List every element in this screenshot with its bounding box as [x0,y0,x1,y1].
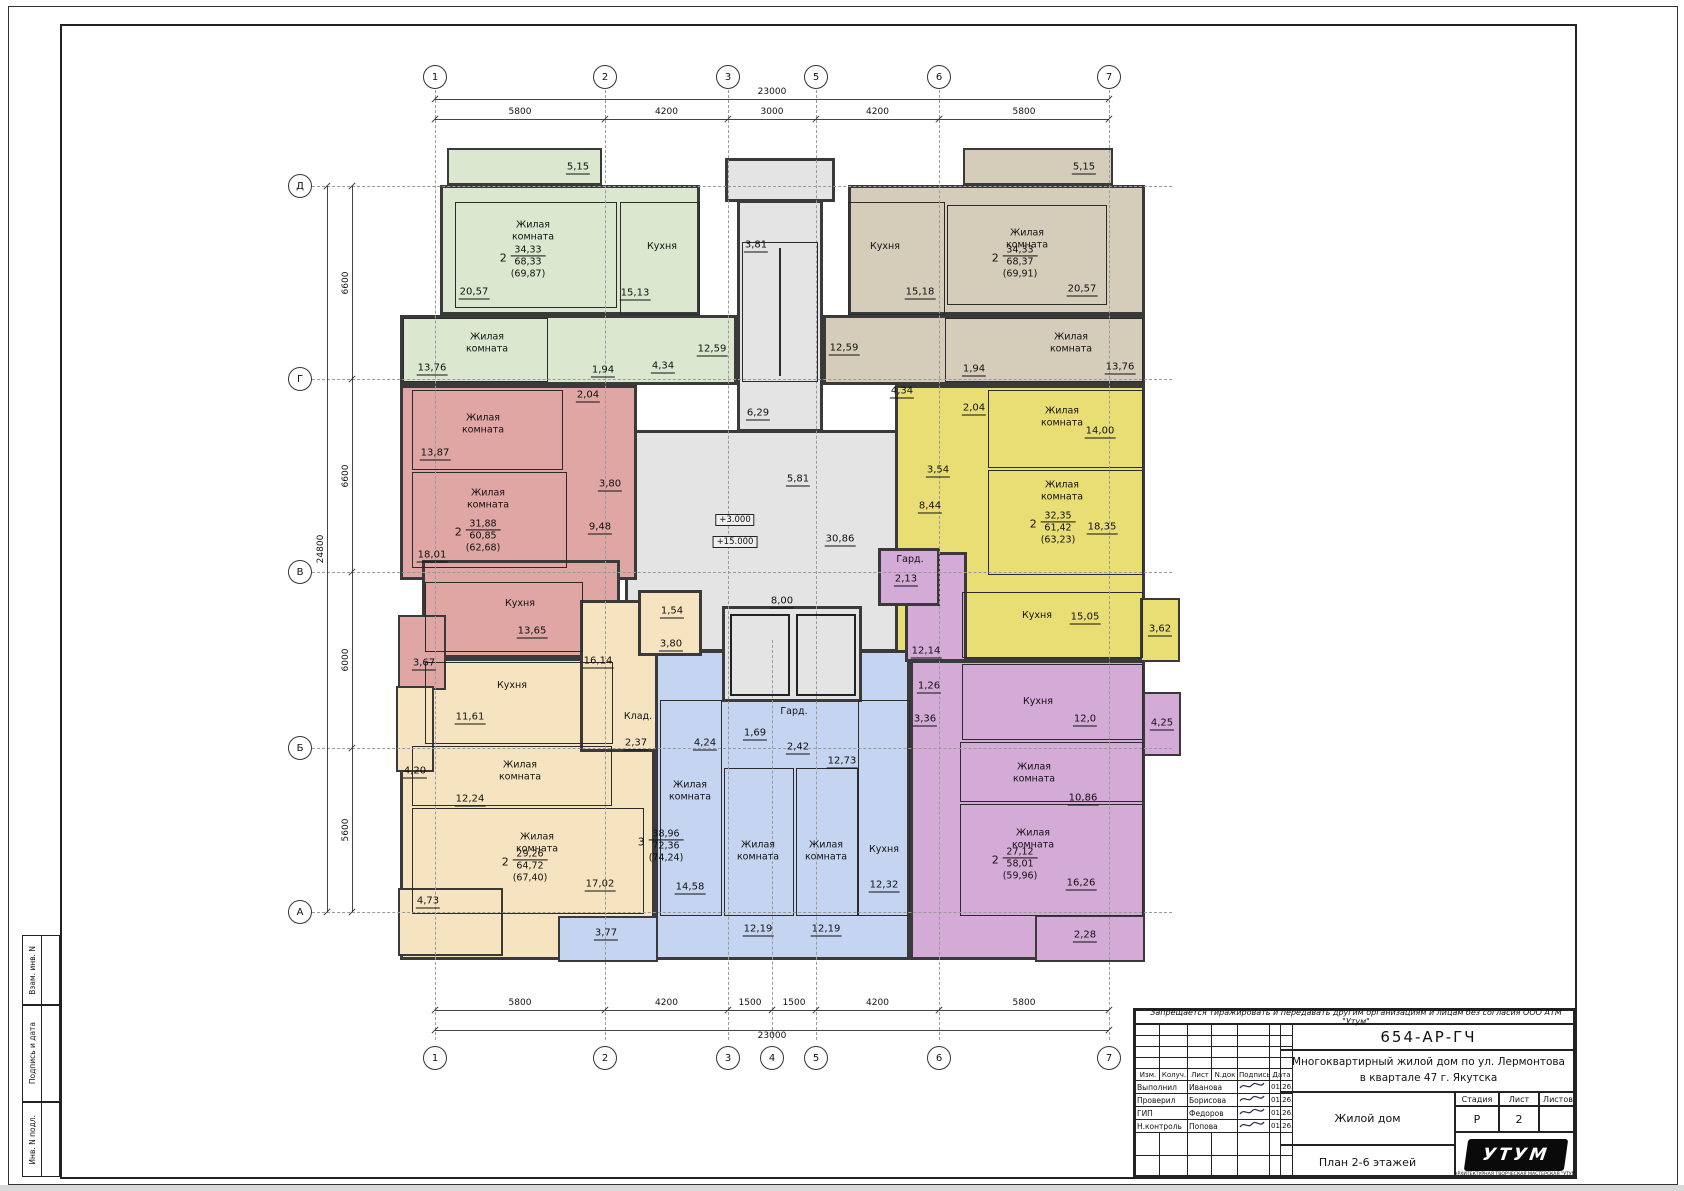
rooms-count: 2 [502,855,509,868]
living-area: 34,33 [1003,244,1038,256]
common-area-value: 30,86 [825,534,856,547]
room-area: 4,34 [890,386,914,399]
stage-table: СтадияРЛист2Листов [1455,1092,1577,1132]
signature-icon [1239,1094,1265,1104]
room-area: 5,15 [566,162,590,175]
room-area: 11,61 [455,712,486,725]
axis-line [605,90,606,1040]
room-area: 13,76 [1105,362,1136,375]
role-cell: Н.контроль [1136,1120,1188,1133]
elevation-mark: +3.000 [715,514,754,526]
dimension-value: 24800 [316,535,326,564]
axis-bubble: 2 [593,1046,617,1070]
stamp-side-label: Подпись и дата [23,1006,42,1101]
title-block: Запрещается тиражировать и передавать др… [1133,1008,1575,1177]
room-area: 4,34 [651,361,675,374]
project-line-1: Многоквартирный жилой дом по ул. Лермонт… [1292,1055,1565,1071]
living-area: 38,96 [649,828,684,840]
axis-line [939,90,940,1040]
room-area: 12,32 [869,880,900,893]
stamp-side-label: Взам. инв. N [23,936,42,1004]
logo: УТУМ АРХИТЕКТУРНАЯ ТВОРЧЕСКАЯ МАСТЕРСКАЯ… [1455,1132,1577,1179]
room-name: Жилая комната [499,760,541,785]
total-area-with-balcony: (67,40) [513,872,548,883]
object-name: Жилой дом [1280,1092,1455,1145]
name-cell: Попова [1188,1120,1238,1133]
grid-header: Изм. [1136,1069,1160,1081]
axis-bubble: А [288,900,312,924]
room-area: 12,24 [455,794,486,807]
dimension-value: 1500 [783,998,806,1008]
common-area-value: 8,00 [770,596,794,609]
room-name: Гард. [896,554,923,566]
axis-bubble: 5 [804,65,828,89]
axis-line [312,912,1172,913]
room-area: 2,37 [624,738,648,751]
signature-icon [1239,1107,1265,1117]
dimension-value: 4200 [655,998,678,1008]
stamp-side-label: Инв. N подл. [23,1103,42,1176]
total-area-with-balcony: (74,24) [649,852,684,863]
axis-line [312,572,1172,573]
room-area: 16,14 [583,656,614,669]
living-area: 32,35 [1041,510,1076,522]
stage-header-cell: Стадия [1455,1092,1499,1106]
room-area: 9,48 [588,522,612,535]
living-area: 31,88 [466,518,501,530]
room-name: Жилая комната [1041,406,1083,431]
room-name: Жилая комната [669,780,711,805]
axis-line [816,90,817,1040]
stage-value-cell: Р [1455,1106,1499,1132]
common-area-value: 3,81 [744,240,768,253]
room-area: 4,20 [403,766,427,779]
axis-line [728,90,729,1040]
axis-line [312,186,1172,187]
stage-value-cell [1539,1106,1577,1132]
room-area: 12,14 [911,646,942,659]
room-area: 20,57 [1067,284,1098,297]
dimension-value: 6600 [341,464,351,487]
living-area: 34,33 [511,244,546,256]
apartment-area-formula: 231,8860,85(62,68) [466,518,501,553]
stamp-side-cell: Взам. инв. N [22,935,60,1005]
apartment-area-formula: 227,1258,01(59,96) [1003,846,1038,881]
room-area: 3,80 [659,639,683,652]
room-area: 3,80 [598,479,622,492]
apartment-area-formula: 338,9672,36(74,24) [649,828,684,863]
room-area: 3,62 [1148,624,1172,637]
dimension-value: 5600 [341,819,351,842]
room-area: 15,13 [620,288,651,301]
axis-bubble: Г [288,367,312,391]
signature-row: ПроверилБорисова01.26. [1136,1094,1293,1107]
stair-divider [779,248,781,376]
room-area: 2,13 [894,574,918,587]
room-name: Клад. [624,711,652,723]
common-area-value: 5,81 [786,474,810,487]
room-area: 10,86 [1068,793,1099,806]
room-area: 13,65 [517,626,548,639]
room-area: 3,67 [412,658,436,671]
living-area: 27,12 [1003,846,1038,858]
room [425,582,583,652]
signature-icon [1239,1120,1265,1130]
signature [1238,1094,1270,1107]
total-area-with-balcony: (63,23) [1041,534,1076,545]
total-area: 61,42 [1041,523,1076,534]
axis-bubble: В [288,560,312,584]
room-area: 1,26 [917,681,941,694]
role-cell: ГИП [1136,1107,1188,1120]
axis-bubble: 1 [423,65,447,89]
room-name: Жилая комната [1013,762,1055,787]
revision-table: Изм.Колуч.ЛистN.докПодписьДатаВыполнилИв… [1135,1024,1280,1179]
room-area: 3,36 [913,714,937,727]
room-name: Кухня [505,598,535,610]
total-area: 64,72 [513,861,548,872]
room [960,804,1143,916]
axis-line [312,748,1172,749]
room-name: Кухня [1023,696,1053,708]
room-name: Жилая комната [1050,332,1092,357]
elevator-shaft [796,614,856,696]
room-area: 12,0 [1073,714,1097,727]
room-area: 1,54 [660,606,684,619]
axis-bubble: 5 [804,1046,828,1070]
apartment-area-formula: 232,3561,42(63,23) [1041,510,1076,545]
signature [1238,1120,1270,1133]
grid-header: Лист [1188,1069,1212,1081]
room-name: Кухня [647,241,677,253]
stage-header-cell: Лист [1499,1092,1539,1106]
room [962,592,1143,658]
signature-icon [1239,1081,1265,1091]
axis-bubble: 7 [1097,1046,1121,1070]
room-name: Кухня [870,241,900,253]
axis-bubble: 7 [1097,65,1121,89]
dimension-line [435,119,1109,120]
room-area: 4,73 [416,896,440,909]
room-area: 1,94 [591,365,615,378]
dimension-value: 5800 [1013,107,1036,117]
room-area: 12,59 [697,344,728,357]
dimension-value: 5800 [1013,998,1036,1008]
signature [1238,1107,1270,1120]
axis-bubble: 6 [927,1046,951,1070]
axis-line [1109,90,1110,1040]
room-area: 18,01 [417,550,448,563]
room-area: 12,19 [811,924,842,937]
elevator-shaft [730,614,790,696]
room-area: 3,54 [926,465,950,478]
dimension-value: 4200 [866,998,889,1008]
common-area-value: 6,29 [746,408,770,421]
utum-logo-icon: УТУМ [1464,1139,1568,1171]
room-name: Жилая комната [512,220,554,245]
dimension-value: 1500 [739,998,762,1008]
role-cell: Проверил [1136,1094,1188,1107]
room-area: 1,94 [962,364,986,377]
axis-bubble: 1 [423,1046,447,1070]
axis-bubble: Б [288,736,312,760]
axis-bubble: 2 [593,65,617,89]
dimension-line [435,99,1109,100]
total-area-with-balcony: (69,87) [511,268,546,279]
common-area [725,158,835,202]
dimension-value: 5800 [509,998,532,1008]
signature-row: ГИПФедоров01.26. [1136,1107,1293,1120]
room-name: Гард. [780,706,807,718]
room-area: 15,18 [905,287,936,300]
grid-header: N.док [1212,1069,1238,1081]
rooms-count: 2 [992,853,999,866]
copyright-notice: Запрещается тиражировать и передавать др… [1135,1010,1577,1024]
room-area: 16,26 [1066,878,1097,891]
grid-header: Подпись [1238,1069,1270,1081]
dimension-line [327,186,328,912]
apartment-area-formula: 234,3368,33(69,87) [511,244,546,279]
dimension-line [352,186,353,912]
total-area: 68,37 [1003,257,1038,268]
rooms-count: 2 [1030,517,1037,530]
axis-bubble: 6 [927,65,951,89]
document-number: 654-АР-ГЧ [1280,1024,1577,1050]
room-area: 14,00 [1085,426,1116,439]
dimension-value: 4200 [866,107,889,117]
room-name: Жилая комната [1041,480,1083,505]
project-line-2: в квартале 47 г. Якутска [1360,1071,1498,1087]
room-area: 2,42 [786,742,810,755]
total-area: 58,01 [1003,859,1038,870]
room-area: 20,57 [459,287,490,300]
room-area: 5,15 [1072,162,1096,175]
room-name: Кухня [497,680,527,692]
room-name: Жилая комната [466,332,508,357]
room-area: 4,24 [693,738,717,751]
room-area: 18,35 [1087,522,1118,535]
grid-header: Колуч. [1160,1069,1188,1081]
sheet-title: План 2-6 этажей [1280,1145,1455,1179]
stage-header-cell: Листов [1539,1092,1577,1106]
dimension-value: 5800 [509,107,532,117]
name-cell: Иванова [1188,1081,1238,1094]
dimension-value: 23000 [758,1031,787,1041]
room-area: 17,02 [585,879,616,892]
room-area: 13,87 [420,448,451,461]
dimension-value: 3000 [761,107,784,117]
name-cell: Борисова [1188,1094,1238,1107]
revision-grid: Изм.Колуч.ЛистN.докПодписьДатаВыполнилИв… [1135,1024,1293,1179]
total-area: 72,36 [649,841,684,852]
room-area: 1,69 [743,728,767,741]
total-area: 60,85 [466,531,501,542]
room-name: Жилая комната [737,840,779,865]
room-area: 3,77 [594,928,618,941]
stamp-side-cell: Инв. N подл. [22,1102,60,1177]
room-area: 13,76 [417,363,448,376]
dimension-value: 4200 [655,107,678,117]
total-area-with-balcony: (69,91) [1003,268,1038,279]
room-area: 4,25 [1150,718,1174,731]
rooms-count: 2 [500,251,507,264]
axis-bubble: Д [288,174,312,198]
rooms-count: 2 [455,525,462,538]
logo-caption: АРХИТЕКТУРНАЯ ТВОРЧЕСКАЯ МАСТЕРСКАЯ "УТУ… [1455,1172,1577,1177]
room-area: 15,05 [1070,612,1101,625]
total-area-with-balcony: (62,68) [466,542,501,553]
role-cell: Выполнил [1136,1081,1188,1094]
room-name: Жилая комната [467,488,509,513]
project-name: Многоквартирный жилой дом по ул. Лермонт… [1280,1050,1577,1092]
room-name: Жилая комната [805,840,847,865]
axis-bubble: 3 [716,65,740,89]
room-area: 2,04 [962,403,986,416]
room-area: 12,59 [829,343,860,356]
total-area: 68,33 [511,257,546,268]
screen-bottom-edge [0,1185,1684,1191]
signature [1238,1081,1270,1094]
dimension-value: 23000 [758,87,787,97]
room-area: 2,28 [1073,930,1097,943]
signature-row: ВыполнилИванова01.26. [1136,1081,1293,1094]
logo-text: УТУМ [1481,1145,1551,1165]
room-area: 2,04 [576,390,600,403]
room-area: 8,44 [918,501,942,514]
dimension-value: 6600 [341,271,351,294]
room-area: 12,73 [827,756,858,769]
apartment-area-formula: 234,3368,37(69,91) [1003,244,1038,279]
name-cell: Федоров [1188,1107,1238,1120]
room [425,662,613,744]
apartment-area-formula: 229,2664,72(67,40) [513,848,548,883]
total-area-with-balcony: (59,96) [1003,870,1038,881]
drawing-sheet: 1235671234567ДГВБА2300058004200300042005… [0,0,1684,1191]
axis-bubble: 3 [716,1046,740,1070]
room-name: Кухня [1022,610,1052,622]
rooms-count: 2 [992,251,999,264]
room-area: 14,58 [675,882,706,895]
living-area: 29,26 [513,848,548,860]
signature-row: Н.контрольПопова01.26. [1136,1120,1293,1133]
stamp-side-cell: Подпись и дата [22,1005,60,1102]
room-area: 12,19 [743,924,774,937]
room-name: Кухня [869,844,899,856]
rooms-count: 3 [638,835,645,848]
elevation-mark: +15.000 [713,536,758,548]
dimension-value: 6000 [341,649,351,672]
stage-value-cell: 2 [1499,1106,1539,1132]
room-name: Жилая комната [462,413,504,438]
axis-bubble: 4 [760,1046,784,1070]
